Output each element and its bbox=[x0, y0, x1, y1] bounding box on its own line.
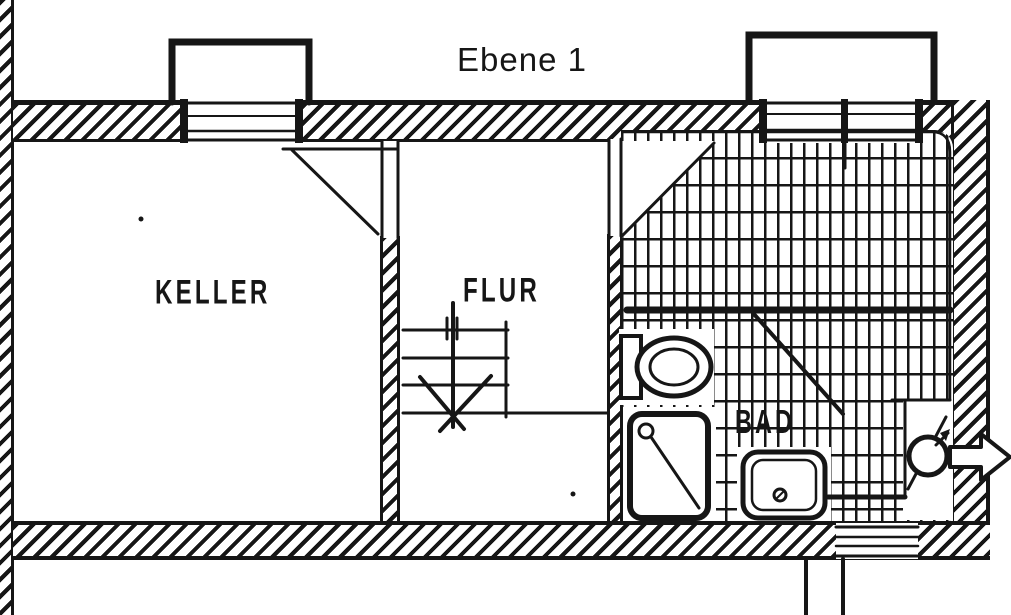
door-keller bbox=[283, 141, 399, 238]
plan-title: Ebene 1 bbox=[457, 41, 587, 79]
floor-plan: Ebene 1 KELLER FLUR BAD bbox=[0, 0, 1011, 615]
shower-tray-symbol bbox=[623, 407, 716, 521]
water-heater-circle-symbol bbox=[909, 437, 947, 475]
stairs-up-symbol bbox=[403, 303, 608, 431]
room-label-keller: KELLER bbox=[155, 272, 270, 312]
bottom-wall-opening bbox=[806, 523, 918, 615]
washbasin-symbol bbox=[737, 447, 831, 521]
door-swing-symbol bbox=[292, 150, 378, 234]
room-label-flur: FLUR bbox=[463, 270, 540, 310]
window-well-left bbox=[172, 42, 309, 143]
exit-direction-arrow bbox=[950, 434, 1010, 480]
niche-bottom-right bbox=[828, 399, 953, 520]
toilet-plan-symbol bbox=[619, 329, 714, 405]
door-bad bbox=[608, 139, 716, 238]
window-well-right bbox=[749, 35, 934, 168]
plan-dot bbox=[571, 492, 576, 497]
plan-dot bbox=[139, 217, 144, 222]
bad-inner-door-swing bbox=[753, 313, 843, 414]
room-label-bad: BAD bbox=[735, 404, 795, 442]
